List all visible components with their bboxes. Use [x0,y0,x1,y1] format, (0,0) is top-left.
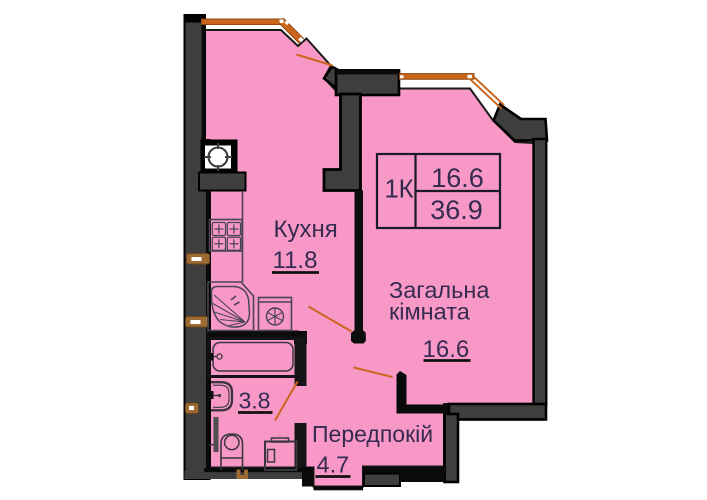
svg-text:16.6: 16.6 [431,163,484,193]
svg-text:11.8: 11.8 [273,247,318,274]
svg-text:36.9: 36.9 [430,195,483,225]
svg-text:4.7: 4.7 [317,452,350,478]
svg-text:кімната: кімната [389,299,471,325]
svg-text:3.8: 3.8 [239,388,271,414]
svg-text:Кухня: Кухня [274,216,338,243]
svg-text:1К: 1К [384,176,413,204]
svg-text:Передпокій: Передпокій [312,421,433,447]
svg-text:16.6: 16.6 [423,336,470,363]
